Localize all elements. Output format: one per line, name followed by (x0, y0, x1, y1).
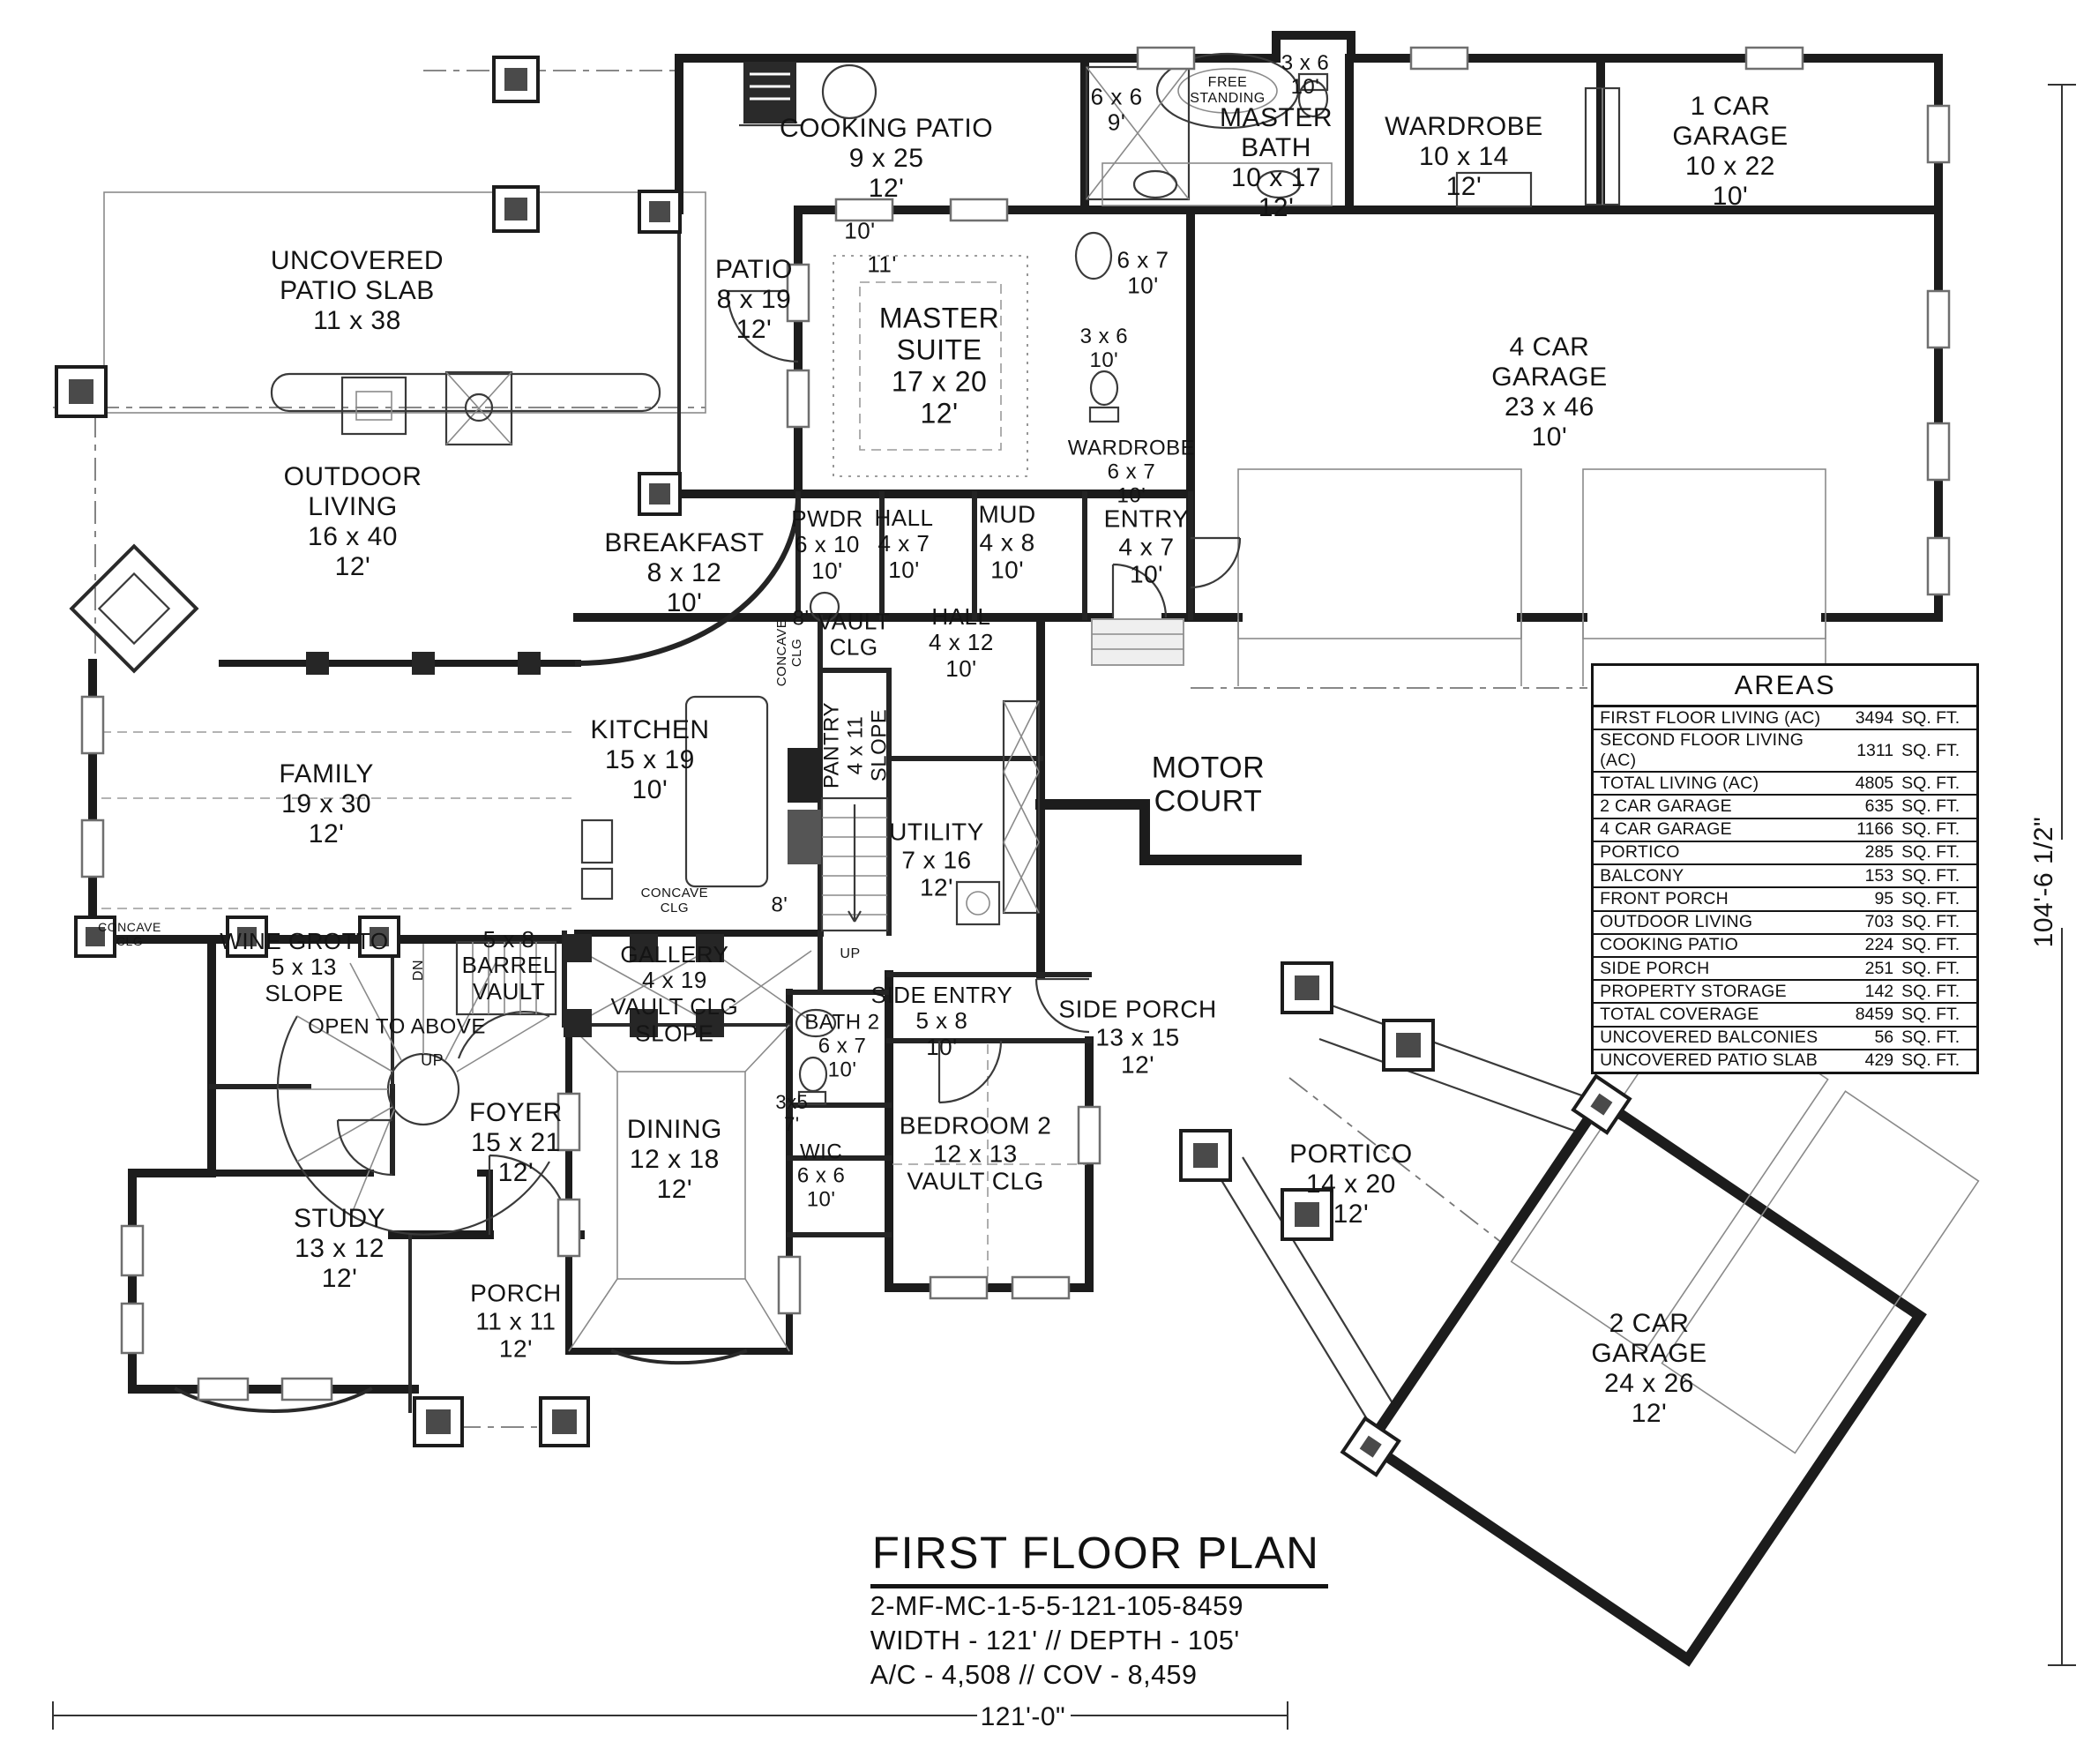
room-utility: UTILITY 7 x 16 12' (889, 818, 984, 902)
room-closet-3x5: 3x5 7' (775, 1092, 808, 1136)
areas-row: FRONT PORCH95SQ. FT. (1594, 888, 1976, 911)
areas-table: AREAS FIRST FLOOR LIVING (AC)3494SQ. FT.… (1591, 663, 1979, 1074)
room-entry: ENTRY 4 x 7 10' (1104, 505, 1190, 589)
areas-table-title: AREAS (1594, 666, 1976, 707)
areas-row-unit: SQ. FT. (1901, 819, 1970, 840)
areas-row-value: 1311 (1830, 741, 1893, 761)
note-10ft-suite: 10' (844, 218, 875, 243)
room-bath-2: BATH 2 6 x 7 10' (804, 1010, 879, 1081)
areas-row-unit: SQ. FT. (1901, 935, 1970, 955)
areas-row: TOTAL COVERAGE8459SQ. FT. (1594, 1004, 1976, 1027)
areas-row-label: FIRST FLOOR LIVING (AC) (1600, 708, 1830, 729)
dimension-right: 104'-6 1/2" (2029, 817, 2059, 948)
room-study: STUDY 13 x 12 12' (294, 1204, 385, 1294)
areas-row-label: PORTICO (1600, 842, 1830, 863)
room-4-car-garage: 4 CAR GARAGE 23 x 46 10' (1491, 333, 1607, 452)
areas-row: OUTDOOR LIVING703SQ. FT. (1594, 912, 1976, 935)
garage-bays (1238, 469, 1826, 686)
room-wardrobe-2: WARDROBE 6 x 7 10' (1068, 436, 1195, 507)
plan-ac-cov: A/C - 4,508 // COV - 8,459 (870, 1659, 1393, 1692)
areas-row-label: SIDE PORCH (1600, 959, 1830, 979)
areas-row-value: 251 (1830, 959, 1893, 979)
areas-row-unit: SQ. FT. (1901, 741, 1970, 761)
areas-row-label: COOKING PATIO (1600, 935, 1830, 955)
areas-row-unit: SQ. FT. (1901, 866, 1970, 886)
room-patio: PATIO 8 x 19 12' (715, 255, 793, 345)
room-master-bath: MASTER BATH 10 x 17 12' (1220, 103, 1333, 223)
areas-row: BALCONY153SQ. FT. (1594, 865, 1976, 888)
room-cooking-patio: COOKING PATIO 9 x 25 12' (780, 114, 993, 204)
room-1-car-garage: 1 CAR GARAGE 10 x 22 10' (1672, 92, 1788, 212)
areas-row: PROPERTY STORAGE142SQ. FT. (1594, 981, 1976, 1004)
room-uncovered-patio-slab: UNCOVERED PATIO SLAB 11 x 38 (271, 246, 444, 336)
room-master-shower: 6 x 6 9' (1091, 85, 1143, 137)
areas-row-unit: SQ. FT. (1901, 1028, 1970, 1048)
areas-row-value: 142 (1830, 982, 1893, 1002)
room-toilet-2: 3 x 6 10' (1080, 325, 1129, 372)
areas-row: 4 CAR GARAGE1166SQ. FT. (1594, 819, 1976, 842)
note-vault-clg: VAULT CLG (818, 609, 890, 661)
areas-row-value: 1166 (1830, 819, 1893, 840)
note-concave-clg-2: CONCAVE CLG (641, 886, 709, 916)
room-2-car-garage: 2 CAR GARAGE 24 x 26 12' (1591, 1309, 1706, 1429)
areas-row-label: TOTAL LIVING (AC) (1600, 774, 1830, 794)
areas-row: FIRST FLOOR LIVING (AC)3494SQ. FT. (1594, 707, 1976, 730)
note-up-back-stair: UP (840, 946, 860, 962)
areas-row-value: 153 (1830, 866, 1893, 886)
areas-row-label: UNCOVERED BALCONIES (1600, 1028, 1830, 1048)
areas-row-label: FRONT PORCH (1600, 889, 1830, 909)
areas-row-label: SECOND FLOOR LIVING (AC) (1600, 730, 1830, 771)
room-dining: DINING 12 x 18 12' (627, 1115, 722, 1205)
room-toilet-1: 3 x 6 10' (1281, 51, 1330, 99)
areas-row-value: 56 (1830, 1028, 1893, 1048)
room-breakfast: BREAKFAST 8 x 12 10' (604, 528, 764, 618)
areas-row-unit: SQ. FT. (1901, 774, 1970, 794)
areas-row: UNCOVERED BALCONIES56SQ. FT. (1594, 1028, 1976, 1050)
room-master-suite: MASTER SUITE 17 x 20 12' (879, 303, 999, 430)
areas-row-unit: SQ. FT. (1901, 982, 1970, 1002)
areas-row-unit: SQ. FT. (1901, 708, 1970, 729)
areas-row-unit: SQ. FT. (1901, 889, 1970, 909)
areas-row: PORTICO285SQ. FT. (1594, 842, 1976, 865)
areas-row-value: 95 (1830, 889, 1893, 909)
area-motor-court: MOTOR COURT (1152, 751, 1265, 819)
room-hall-1: HALL 4 x 7 10' (874, 505, 933, 583)
areas-row-label: OUTDOOR LIVING (1600, 912, 1830, 932)
areas-row-label: 2 CAR GARAGE (1600, 796, 1830, 817)
areas-row: 2 CAR GARAGE635SQ. FT. (1594, 796, 1976, 818)
areas-row-value: 703 (1830, 912, 1893, 932)
room-pwdr: PWDR 6 x 10 10' (791, 506, 863, 584)
room-porch: PORCH 11 x 11 12' (470, 1280, 562, 1364)
room-bedroom-2: BEDROOM 2 12 x 13 VAULT CLG (900, 1112, 1052, 1196)
room-side-entry: SIDE ENTRY 5 x 8 10' (871, 983, 1013, 1060)
areas-row-value: 224 (1830, 935, 1893, 955)
back-stair (822, 798, 887, 931)
areas-row-label: 4 CAR GARAGE (1600, 819, 1830, 840)
room-gallery: GALLERY 4 x 19 VAULT CLG (611, 942, 739, 1020)
note-11ft-suite: 11' (867, 251, 896, 277)
areas-row: COOKING PATIO224SQ. FT. (1594, 935, 1976, 958)
areas-table-rows: FIRST FLOOR LIVING (AC)3494SQ. FT.SECOND… (1594, 707, 1976, 1072)
areas-row-unit: SQ. FT. (1901, 1005, 1970, 1025)
note-concave-clg-1: CONCAVE CLG (775, 619, 805, 687)
room-wardrobe-1: WARDROBE 10 x 14 12' (1385, 112, 1543, 202)
areas-row-label: PROPERTY STORAGE (1600, 982, 1830, 1002)
room-side-porch: SIDE PORCH 13 x 15 12' (1058, 996, 1216, 1080)
areas-row: SIDE PORCH251SQ. FT. (1594, 958, 1976, 981)
areas-row-unit: SQ. FT. (1901, 912, 1970, 932)
room-outdoor-living: OUTDOOR LIVING 16 x 40 12' (284, 462, 422, 582)
areas-row-value: 429 (1830, 1050, 1893, 1071)
note-slope-dining: SLOPE (635, 1020, 713, 1046)
room-pantry: PANTRY 4 x 11 SLOPE (819, 702, 891, 789)
areas-row-value: 635 (1830, 796, 1893, 817)
room-linen: 6 x 7 10' (1117, 248, 1169, 300)
dimension-bottom: 121'-0" (981, 1702, 1066, 1732)
note-free-standing: FREE STANDING (1190, 75, 1265, 107)
note-8ft-2: 8' (771, 893, 788, 916)
floor-plan-sheet: UNCOVERED PATIO SLAB 11 x 38OUTDOOR LIVI… (0, 0, 2091, 1764)
room-foyer: FOYER 15 x 21 12' (469, 1098, 563, 1188)
room-hall-2: HALL 4 x 12 10' (929, 604, 994, 682)
areas-row: UNCOVERED PATIO SLAB429SQ. FT. (1594, 1050, 1976, 1072)
room-wic: WIC 6 x 6 10' (797, 1140, 846, 1211)
note-barrel-vault: 5 x 8 BARREL VAULT (462, 927, 556, 1005)
areas-row-value: 3494 (1830, 708, 1893, 729)
areas-row-value: 4805 (1830, 774, 1893, 794)
areas-row-unit: SQ. FT. (1901, 1050, 1970, 1071)
title-block: FIRST FLOOR PLAN 2-MF-MC-1-5-5-121-105-8… (870, 1527, 1393, 1693)
plan-code: 2-MF-MC-1-5-5-121-105-8459 (870, 1590, 1393, 1623)
areas-row-value: 285 (1830, 842, 1893, 863)
note-open-to-above: OPEN TO ABOVE (308, 1014, 486, 1038)
room-portico: PORTICO 14 x 20 12' (1289, 1140, 1413, 1230)
areas-row: SECOND FLOOR LIVING (AC)1311SQ. FT. (1594, 730, 1976, 773)
areas-row-label: UNCOVERED PATIO SLAB (1600, 1050, 1830, 1071)
room-mud: MUD 4 x 8 10' (978, 501, 1035, 585)
areas-row-unit: SQ. FT. (1901, 796, 1970, 817)
note-up-spiral: UP (421, 1051, 444, 1069)
room-kitchen: KITCHEN 15 x 19 10' (590, 715, 709, 805)
plan-width-depth: WIDTH - 121' // DEPTH - 105' (870, 1625, 1393, 1657)
areas-row-unit: SQ. FT. (1901, 842, 1970, 863)
areas-row-value: 8459 (1830, 1005, 1893, 1025)
areas-row-unit: SQ. FT. (1901, 959, 1970, 979)
room-family: FAMILY 19 x 30 12' (279, 759, 373, 849)
areas-row: TOTAL LIVING (AC)4805SQ. FT. (1594, 773, 1976, 796)
areas-row-label: BALCONY (1600, 866, 1830, 886)
entry-stoop (1092, 619, 1184, 665)
plan-title: FIRST FLOOR PLAN (870, 1527, 1329, 1588)
areas-row-label: TOTAL COVERAGE (1600, 1005, 1830, 1025)
room-wine-grotto: WINE GROTTO 5 x 13 SLOPE (220, 929, 388, 1006)
note-dn-stair: DN (411, 960, 427, 981)
note-concave-clg-3: CONCAVE CLG (98, 921, 161, 949)
